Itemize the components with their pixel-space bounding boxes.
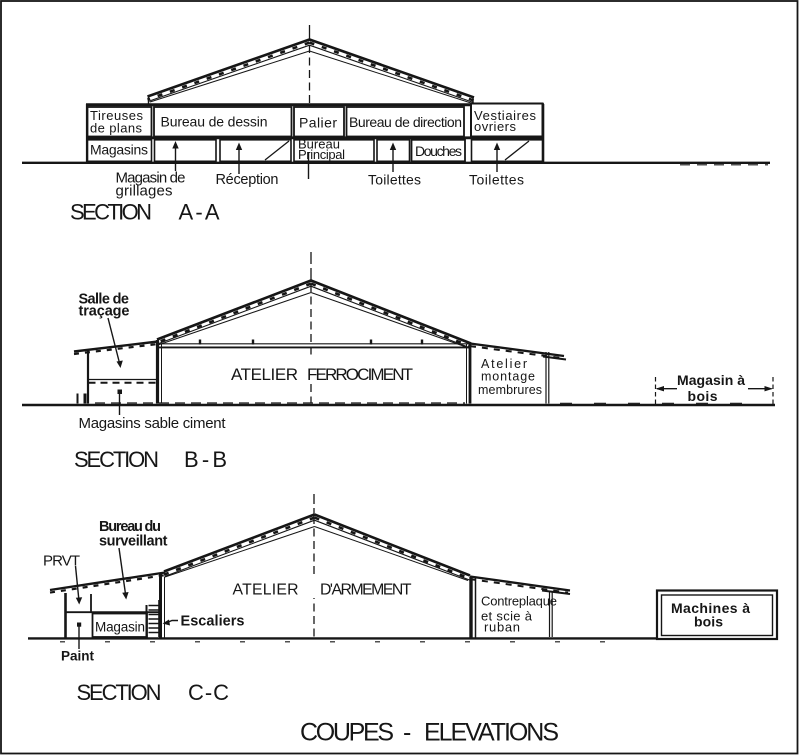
svg-text:Réception: Réception	[216, 172, 279, 188]
svg-text:FERROCIMENT: FERROCIMENT	[307, 365, 413, 384]
svg-text:Bureau de direction: Bureau de direction	[349, 114, 462, 130]
svg-text:A-A: A-A	[179, 200, 220, 225]
svg-text:bois: bois	[694, 614, 723, 630]
svg-text:B-B: B-B	[184, 447, 227, 472]
svg-text:Contreplaque: Contreplaque	[481, 594, 557, 609]
svg-text:ovriers: ovriers	[474, 119, 517, 134]
svg-text:grillages: grillages	[116, 183, 173, 200]
svg-text:bois: bois	[688, 388, 718, 404]
svg-text:ELEVATIONS: ELEVATIONS	[424, 719, 559, 747]
svg-text:ATELIER: ATELIER	[231, 365, 298, 384]
svg-text:Douches: Douches	[415, 143, 462, 159]
svg-text:Magasins: Magasins	[90, 142, 148, 158]
svg-text:Magasin: Magasin	[95, 620, 145, 635]
svg-text:membrures: membrures	[478, 383, 542, 397]
svg-text:montage: montage	[481, 370, 535, 384]
svg-text:SECTION: SECTION	[77, 680, 162, 705]
svg-text:Palier: Palier	[299, 115, 337, 131]
svg-text:SECTION: SECTION	[70, 200, 152, 225]
svg-text:traçage: traçage	[79, 304, 130, 320]
svg-text:C-C: C-C	[188, 680, 229, 705]
svg-text:-: -	[403, 719, 411, 747]
svg-text:Toilettes: Toilettes	[469, 172, 524, 188]
svg-text:Escaliers: Escaliers	[181, 614, 245, 630]
svg-text:Bureau de dessin: Bureau de dessin	[161, 114, 268, 130]
svg-text:PRVT: PRVT	[43, 553, 80, 570]
svg-text:ruban: ruban	[484, 620, 520, 635]
svg-text:Principal: Principal	[298, 147, 345, 162]
svg-text:Magasins sable ciment: Magasins sable ciment	[79, 415, 227, 432]
svg-text:Paint: Paint	[61, 649, 95, 664]
svg-text:surveillant: surveillant	[99, 534, 168, 550]
svg-text:Magasin à: Magasin à	[677, 372, 745, 388]
svg-text:Toilettes: Toilettes	[368, 172, 421, 188]
svg-text:D'ARMEMENT: D'ARMEMENT	[320, 582, 412, 599]
svg-text:de plans: de plans	[90, 121, 143, 136]
svg-text:SECTION: SECTION	[74, 447, 159, 472]
svg-text:ATELIER: ATELIER	[233, 582, 299, 599]
svg-text:COUPES: COUPES	[300, 719, 394, 747]
